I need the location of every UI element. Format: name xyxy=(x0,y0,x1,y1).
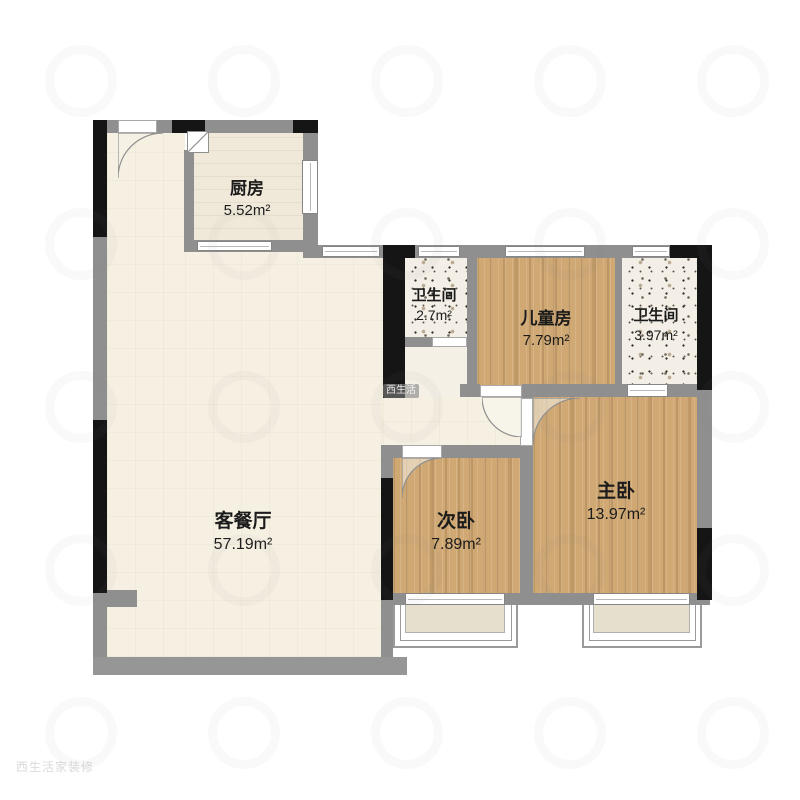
floor-plan: 厨房 5.52m² 卫生间 2.7m² 儿童房 7.79m² 卫生间 3.97m… xyxy=(0,0,800,800)
bearing-wall xyxy=(381,478,393,600)
wall-segment xyxy=(107,590,137,607)
watermark-circle-icon xyxy=(45,45,117,117)
bearing-wall xyxy=(293,120,318,133)
kids-door-leaf xyxy=(480,385,522,397)
watermark-circle-icon xyxy=(45,697,117,769)
room-area: 13.97m² xyxy=(587,506,646,524)
bearing-wall xyxy=(383,245,415,258)
wall-segment xyxy=(93,657,407,675)
second-door-leaf xyxy=(402,445,442,458)
bearing-wall xyxy=(93,420,107,593)
room-living-floor-main xyxy=(185,252,383,657)
wall-segment xyxy=(442,445,520,458)
entry-door-swing-icon xyxy=(118,133,163,178)
window xyxy=(505,246,585,257)
kitchen-door-icon xyxy=(187,131,209,153)
bearing-wall xyxy=(383,258,405,398)
bearing-wall xyxy=(697,528,712,600)
entry-door-opening xyxy=(118,120,157,133)
wall-segment xyxy=(467,258,477,390)
second-door-swing-icon xyxy=(402,458,442,498)
vestibule-floor xyxy=(405,347,467,397)
room-area: 5.52m² xyxy=(224,202,271,219)
room-label-bath1: 卫生间 2.7m² xyxy=(411,284,456,323)
room-area: 7.89m² xyxy=(431,536,481,554)
window xyxy=(632,246,670,257)
room-label-living: 客餐厅 57.19m² xyxy=(214,506,273,554)
room-label-kids: 儿童房 7.79m² xyxy=(521,304,572,349)
room-name: 主卧 xyxy=(587,476,646,503)
watermark-circle-icon xyxy=(534,697,606,769)
room-label-second: 次卧 7.89m² xyxy=(431,506,481,554)
room-name: 厨房 xyxy=(224,174,271,199)
room-name: 卫生间 xyxy=(411,284,456,305)
wall-segment xyxy=(381,455,393,478)
wall-segment xyxy=(615,258,622,384)
watermark-circle-icon xyxy=(697,697,769,769)
watermark-circle-icon xyxy=(371,45,443,117)
room-living-floor-left xyxy=(107,133,185,657)
room-name: 儿童房 xyxy=(521,304,572,329)
wall-segment xyxy=(520,446,533,605)
bearing-wall xyxy=(93,120,107,237)
window xyxy=(197,241,272,251)
watermark-circle-icon xyxy=(208,45,280,117)
watermark-corner-text: 西生活家装修 xyxy=(16,758,94,775)
window xyxy=(418,246,460,257)
window xyxy=(405,593,505,605)
master-door-swing-icon xyxy=(533,398,580,445)
room-label-bath2: 卫生间 3.97m² xyxy=(633,304,678,343)
room-name: 次卧 xyxy=(431,506,481,533)
room-area: 3.97m² xyxy=(633,327,678,343)
window xyxy=(593,593,690,605)
room-area: 7.79m² xyxy=(521,332,572,349)
wall-segment xyxy=(381,600,393,657)
wall-segment xyxy=(184,150,194,242)
room-area: 57.19m² xyxy=(214,536,273,554)
bath2-door xyxy=(627,384,668,397)
kids-door-swing-icon xyxy=(482,397,522,437)
window xyxy=(302,160,318,214)
wall-segment xyxy=(697,390,712,528)
watermark-circle-icon xyxy=(208,697,280,769)
wall-segment xyxy=(405,337,432,347)
room-label-master: 主卧 13.97m² xyxy=(587,476,646,524)
wall-segment xyxy=(460,384,480,397)
watermark-circle-icon xyxy=(697,45,769,117)
watermark-circle-icon xyxy=(534,45,606,117)
window xyxy=(322,246,380,257)
wall-segment xyxy=(505,593,593,605)
bearing-wall xyxy=(697,245,712,390)
bath1-door-opening xyxy=(432,337,467,347)
room-name: 客餐厅 xyxy=(214,506,273,533)
room-area: 2.7m² xyxy=(411,307,456,323)
wall-segment xyxy=(522,384,627,397)
room-name: 卫生间 xyxy=(633,304,678,325)
watermark-circle-icon xyxy=(371,697,443,769)
room-label-kitchen: 厨房 5.52m² xyxy=(224,174,271,219)
